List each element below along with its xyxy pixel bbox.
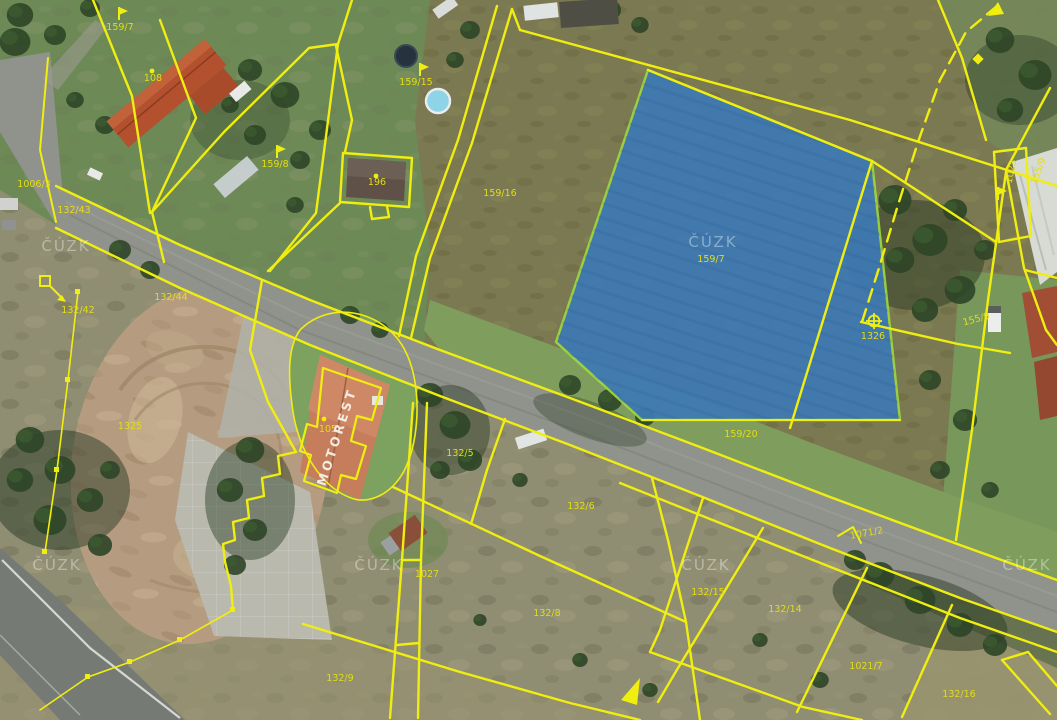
- map-canvas[interactable]: 159/7 108 159/8 1006/3 132/43 132/42 132…: [0, 0, 1057, 720]
- cuzk-watermark: ČÚZK: [1002, 555, 1051, 574]
- left-edge-structure-2: [2, 220, 16, 230]
- parcel-label-159-20: 159/20: [724, 429, 757, 440]
- building-label-108: 108: [144, 73, 162, 84]
- garden-shed-dark: [559, 0, 619, 28]
- parcel-label-132-42: 132/42: [61, 305, 94, 316]
- parcel-label-159-15: 159/15: [399, 77, 432, 88]
- cuzk-watermark: ČÚZK: [688, 232, 737, 251]
- cuzk-watermark: ČÚZK: [32, 555, 81, 574]
- parcel-label-132-14: 132/14: [768, 604, 801, 615]
- building-label-196: 196: [368, 177, 386, 188]
- cuzk-watermark: ČÚZK: [681, 555, 730, 574]
- aerial-photo-layer: [0, 0, 1057, 720]
- map-viewport[interactable]: 159/7 108 159/8 1006/3 132/43 132/42 132…: [0, 0, 1057, 720]
- dark-pool: [395, 45, 417, 67]
- dot-marker-icon: [322, 417, 327, 422]
- parcel-label-132-9: 132/9: [326, 673, 353, 684]
- parcel-label-159-16: 159/16: [483, 188, 516, 199]
- parcel-label-132-5: 132/5: [446, 448, 473, 459]
- parcel-label-132-44: 132/44: [154, 292, 187, 303]
- parcel-label-159-8: 159/8: [261, 159, 288, 170]
- parcel-label-1006-3: 1006/3: [17, 179, 50, 190]
- parcel-label-132-6: 132/6: [567, 501, 594, 512]
- parcel-label-132-43: 132/43: [57, 205, 90, 216]
- parcel-label-1326: 1326: [861, 331, 885, 342]
- parcel-label-1325: 1325: [118, 421, 142, 432]
- parcel-label-159-7-highlight: 159/7: [697, 254, 724, 265]
- parcel-label-159-7-nw: 159/7: [106, 22, 133, 33]
- blue-pool: [426, 89, 450, 113]
- cuzk-watermark: ČÚZK: [354, 555, 403, 574]
- cuzk-watermark: ČÚZK: [41, 236, 90, 255]
- parcel-label-132-15: 132/15: [691, 587, 724, 598]
- parcel-label-132-8: 132/8: [533, 608, 560, 619]
- parcel-label-1021-7: 1021/7: [849, 661, 882, 672]
- left-edge-structure-1: [0, 198, 18, 210]
- parcel-label-132-16: 132/16: [942, 689, 975, 700]
- parcel-label-1027: 1027: [415, 569, 439, 580]
